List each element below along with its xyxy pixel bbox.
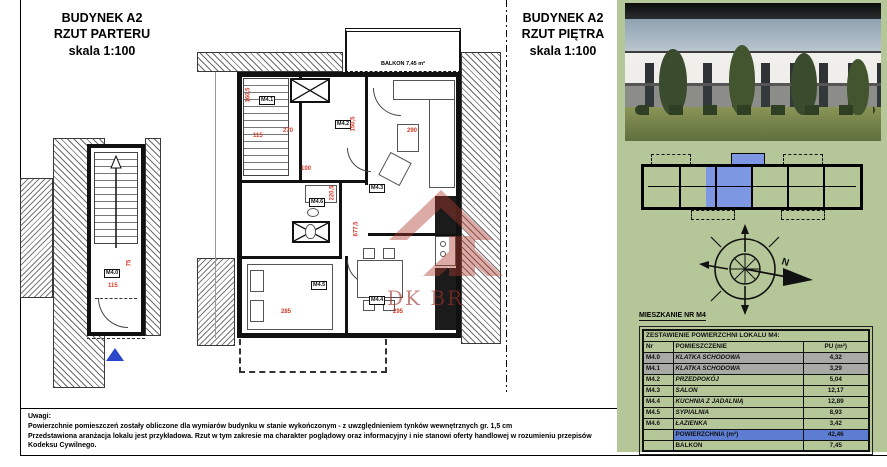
plan-ground-floor: M4.0 75 115: [20, 138, 172, 390]
cell-room: SYPIALNIA: [673, 407, 803, 418]
title-first-floor: BUDYNEK A2 RZUT PIĘTRA skala 1:100: [510, 10, 616, 59]
interior-wall: [242, 180, 368, 183]
keyplan-highlight-unit: [706, 167, 752, 207]
cell-empty: [643, 440, 673, 451]
interior-wall: [339, 180, 342, 258]
cell-nr: M4.5: [643, 407, 673, 418]
plan-first-floor: BALKON 7,45 m²: [197, 28, 503, 395]
hatched-wall: [145, 138, 161, 336]
cell-nr: M4.4: [643, 396, 673, 407]
title-line: RZUT PIĘTRA: [510, 26, 616, 42]
table-header-row: Nr POMIESZCZENIE PU (m²): [643, 341, 869, 352]
cell-nr: M4.0: [643, 352, 673, 363]
dimension: 220,5: [330, 185, 336, 200]
keyplan-inner-wall: [648, 186, 856, 187]
area-table: ZESTAWIENIE POWIERZCHNI LOKALU M4: Nr PO…: [642, 329, 870, 452]
cell-nr: M4.6: [643, 418, 673, 429]
table-row: M4.1 KLATKA SCHODOWA 3,29: [643, 363, 869, 374]
table-row: M4.3 SALON 12,17: [643, 385, 869, 396]
notes-line: Przedstawiona aranżacja lokalu jest przy…: [28, 432, 613, 442]
toilet: [305, 224, 316, 239]
balcony-value: 7,45: [803, 440, 869, 451]
neighbor-wall-line: [215, 72, 216, 338]
table-caption-row: ZESTAWIENIE POWIERZCHNI LOKALU M4:: [643, 330, 869, 341]
hatched-wall: [197, 258, 235, 346]
table-row: M4.4 KUCHNIA Z JADALNIĄ 12,89: [643, 396, 869, 407]
notes-label: Uwagi:: [28, 412, 613, 422]
room-label-m45: M4.5: [311, 281, 327, 290]
title-line: RZUT PARTERU: [42, 26, 162, 42]
table-balcony-row: BALKON 7,45: [643, 440, 869, 451]
keyplan-divider: [823, 167, 825, 207]
cell-room: SALON: [673, 385, 803, 396]
cell-empty: [643, 429, 673, 440]
entry-dashed-line: [87, 338, 145, 339]
compass-rose-icon: N: [687, 222, 817, 316]
notes-line: Kodeksu Cywilnego.: [28, 441, 613, 451]
keyplan-divider: [715, 167, 717, 207]
cell-nr: M4.3: [643, 385, 673, 396]
room-label-m41: M4.1: [259, 96, 275, 105]
terrace-dashed-outline: [239, 339, 387, 373]
cell-nr: M4.2: [643, 374, 673, 385]
title-line: skala 1:100: [510, 43, 616, 59]
kitchen-counter: [435, 236, 456, 266]
cell-room: ŁAZIENKA: [673, 418, 803, 429]
dimension: 160,5: [246, 87, 252, 102]
balcony-label: BALKON: [673, 440, 803, 451]
site-key-plan: [635, 150, 871, 224]
compass-north-label: N: [780, 256, 790, 269]
cell-area: 8,93: [803, 407, 869, 418]
keyplan-balcony: [691, 210, 735, 220]
balcony: BALKON 7,45 m²: [345, 28, 461, 72]
chair: [383, 248, 395, 259]
interior-wall: [242, 256, 342, 259]
dimension: 285: [281, 309, 291, 315]
dimension: 270: [283, 128, 293, 134]
shaft-cross-icon: [290, 78, 330, 103]
footer-top-rule: [20, 408, 617, 409]
chair: [363, 248, 375, 259]
table-row: M4.6 ŁAZIENKA 3,42: [643, 418, 869, 429]
cell-area: 12,89: [803, 396, 869, 407]
cell-room: KLATKA SCHODOWA: [673, 352, 803, 363]
dimension: 295: [393, 309, 403, 315]
dining-table: [357, 260, 403, 298]
cell-room: KUCHNIA Z JADALNIĄ: [673, 396, 803, 407]
keyplan-divider: [679, 167, 681, 207]
table-total-row: POWIERZCHNIA (m²) 42,46: [643, 429, 869, 440]
cell-room: KLATKA SCHODOWA: [673, 363, 803, 374]
title-ground-floor: BUDYNEK A2 RZUT PARTERU skala 1:100: [42, 10, 162, 59]
drawing-sheet: BUDYNEK A2 RZUT PARTERU skala 1:100 BUDY…: [0, 0, 887, 467]
hatched-wall: [20, 178, 53, 298]
cell-area: 3,29: [803, 363, 869, 374]
section-cut-line: [506, 0, 507, 392]
title-line: BUDYNEK A2: [42, 10, 162, 26]
cell-area: 5,04: [803, 374, 869, 385]
entrance-marker-icon: [106, 348, 124, 361]
room-label-m44: M4.4: [369, 296, 385, 305]
footer-bottom-rule: [20, 455, 887, 456]
table-caption: ZESTAWIENIE POWIERZCHNI LOKALU M4:: [643, 330, 869, 341]
kitchen-appliance: [435, 196, 456, 234]
total-label: POWIERZCHNIA (m²): [673, 429, 803, 440]
table-row: M4.2 PRZEDPOKÓJ 5,04: [643, 374, 869, 385]
col-header-room: POMIESZCZENIE: [673, 341, 803, 352]
dimension: 75: [126, 260, 132, 267]
dimension: 677,5: [354, 221, 360, 236]
keyplan-divider: [751, 167, 753, 207]
balcony-label: BALKON 7,45 m²: [347, 61, 459, 67]
cell-nr: M4.1: [643, 363, 673, 374]
dimension: 115: [253, 133, 263, 139]
hatched-wall: [461, 52, 501, 344]
cell-area: 3,42: [803, 418, 869, 429]
dimension: 100: [301, 166, 311, 172]
building-photo: [625, 3, 881, 141]
cell-area: 12,17: [803, 385, 869, 396]
sink: [307, 208, 319, 217]
col-header-area: PU (m²): [803, 341, 869, 352]
notes-line: Powierzchnie pomieszczeń zostały obliczo…: [28, 422, 613, 432]
keyplan-building: [641, 164, 863, 210]
dimension: 290: [407, 128, 417, 134]
sofa: [429, 98, 455, 188]
table-row: M4.0 KLATKA SCHODOWA 4,32: [643, 352, 869, 363]
photo-bushes: [635, 105, 875, 115]
pillow: [250, 300, 264, 322]
table-row: M4.5 SYPIALNIA 8,93: [643, 407, 869, 418]
hatched-wall: [197, 52, 343, 72]
cell-area: 4,32: [803, 352, 869, 363]
col-header-nr: Nr: [643, 341, 673, 352]
keyplan-divider: [787, 167, 789, 207]
room-label-m40: M4.0: [104, 269, 120, 278]
info-panel: N MIESZKANIE NR M4 ZESTAWIENIE POWIERZCH…: [617, 0, 887, 452]
footer-notes: Uwagi: Powierzchnie pomieszczeń zostały …: [28, 412, 613, 451]
total-value: 42,46: [803, 429, 869, 440]
sofa: [393, 80, 455, 100]
room-label-m43: M4.3: [369, 184, 385, 193]
area-table-frame: ZESTAWIENIE POWIERZCHNI LOKALU M4: Nr PO…: [639, 326, 873, 455]
room-label-m46: M4.6: [309, 198, 325, 207]
keyplan-balcony: [781, 210, 825, 220]
pillow: [250, 270, 264, 292]
cell-room: PRZEDPOKÓJ: [673, 374, 803, 385]
dimension: 115: [108, 283, 118, 289]
photo-roof-overhang: [625, 3, 881, 19]
apartment-number-label: MIESZKANIE NR M4: [639, 312, 706, 321]
title-line: skala 1:100: [42, 43, 162, 59]
stair-direction-arrow-icon: [91, 148, 141, 258]
title-line: BUDYNEK A2: [510, 10, 616, 26]
room-label-m42: M4.2: [335, 120, 351, 129]
kitchen-appliance: [435, 268, 456, 330]
dimension: 150,5: [351, 116, 357, 131]
